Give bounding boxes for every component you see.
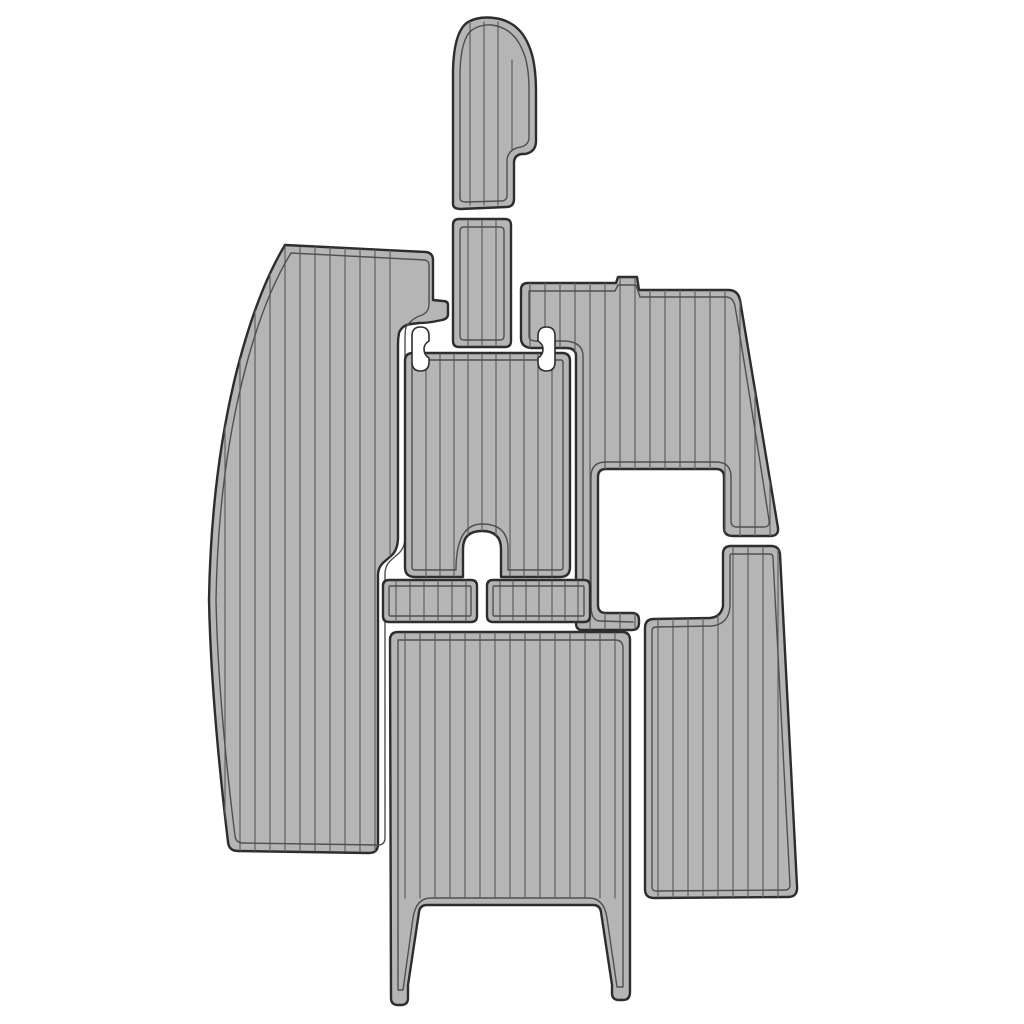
stern-seat-pad (390, 632, 630, 1005)
decking-pad-set-illustration (0, 0, 1024, 1024)
bow-console-pad (453, 18, 536, 210)
left-tab-pad (383, 580, 477, 622)
starboard-bottom-pad (645, 546, 797, 898)
right-tab-pad (487, 580, 590, 622)
boat-eva-decking-pad-diagram (0, 0, 1024, 1024)
dumbbell-cutout-left (412, 327, 429, 371)
spacer-strip-pad (453, 219, 511, 347)
center-keyhole-pad (405, 353, 570, 577)
